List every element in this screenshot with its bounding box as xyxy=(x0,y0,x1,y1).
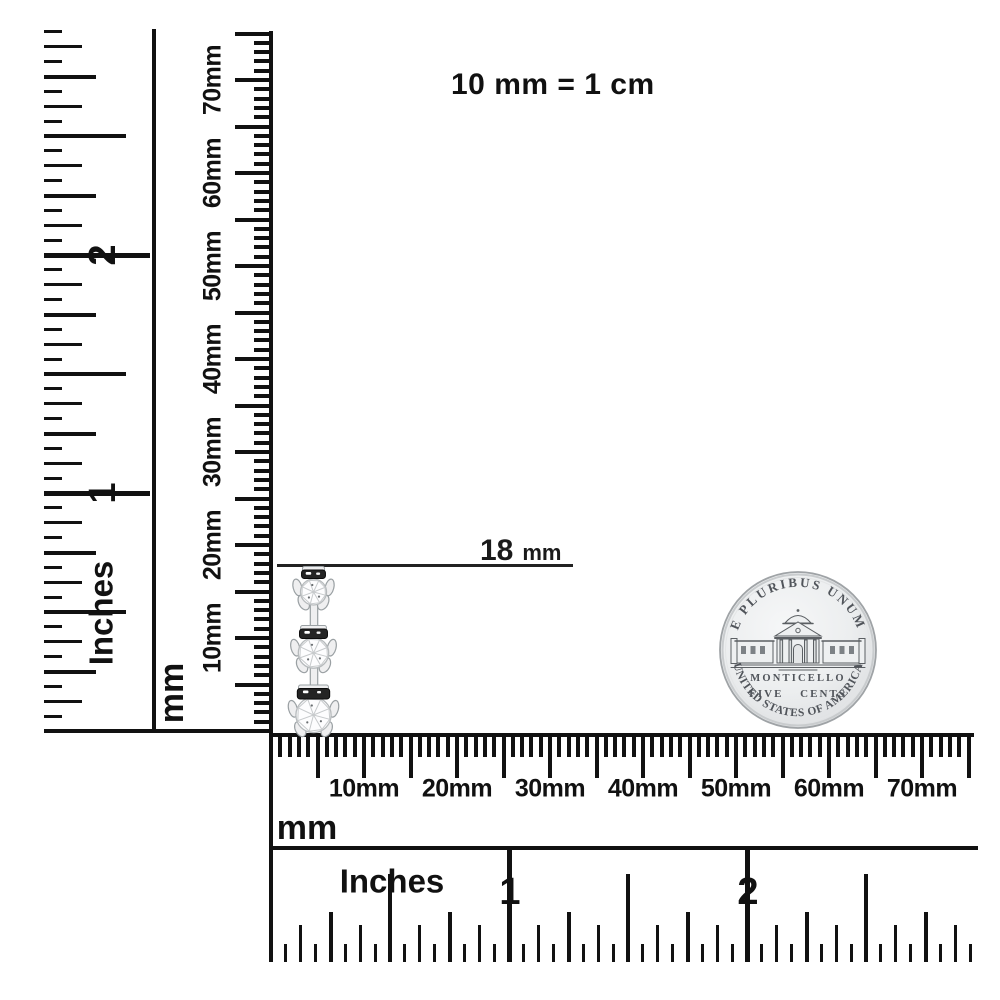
doorway xyxy=(794,645,803,664)
earring-graphics xyxy=(287,567,341,739)
column xyxy=(789,640,792,663)
horizontal-mm-label: 10mm xyxy=(329,777,399,802)
vertical-mm-label: 60mm xyxy=(201,138,226,208)
measurement-label: 18 mm xyxy=(480,534,562,568)
column xyxy=(805,640,808,663)
horizontal-inch-number: 2 xyxy=(737,873,758,911)
horizontal-mm-label: 30mm xyxy=(515,777,585,802)
vertical-mm-label: 20mm xyxy=(201,510,226,580)
horizontal-mm-label: 60mm xyxy=(794,777,864,802)
horizontal-mm-label: 50mm xyxy=(701,777,771,802)
measurement-unit: mm xyxy=(522,540,561,566)
ruler-labels-layer: 10mm20mm30mm40mm50mm60mm70mm10mm20mm30mm… xyxy=(0,0,1000,1000)
horizontal-inch-number: 1 xyxy=(499,873,520,911)
horizontal-mm-label: 20mm xyxy=(422,777,492,802)
dome-finial xyxy=(797,609,800,612)
horizontal-mm-unit-label: mm xyxy=(277,811,337,845)
vertical-inch-number: 1 xyxy=(84,482,122,503)
vertical-inches-unit-label: Inches xyxy=(85,561,118,666)
horizontal-inches-unit-label: Inches xyxy=(340,865,445,898)
vertical-mm-label: 30mm xyxy=(201,417,226,487)
horizontal-mm-label: 40mm xyxy=(608,777,678,802)
vertical-mm-label: 40mm xyxy=(201,324,226,394)
column xyxy=(780,640,783,663)
diamond-earring-image xyxy=(278,556,353,746)
vertical-mm-label: 10mm xyxy=(201,603,226,673)
vertical-mm-label: 50mm xyxy=(201,231,226,301)
vertical-mm-label: 70mm xyxy=(201,45,226,115)
vertical-inch-number: 2 xyxy=(84,244,122,265)
vertical-mm-unit-label: mm xyxy=(155,663,189,723)
size-guide-image: 10mm20mm30mm40mm50mm60mm70mm10mm20mm30mm… xyxy=(0,0,1000,1000)
scale-note: 10 mm = 1 cm xyxy=(451,68,655,102)
column xyxy=(814,640,817,663)
coin-building-label: MONTICELLO xyxy=(750,673,846,684)
horizontal-mm-label: 70mm xyxy=(887,777,957,802)
nickel-coin-image: E PLURIBUS UNUM MONTICELLO FIVE CENTS UN… xyxy=(708,560,888,740)
measurement-value: 18 xyxy=(480,534,513,568)
